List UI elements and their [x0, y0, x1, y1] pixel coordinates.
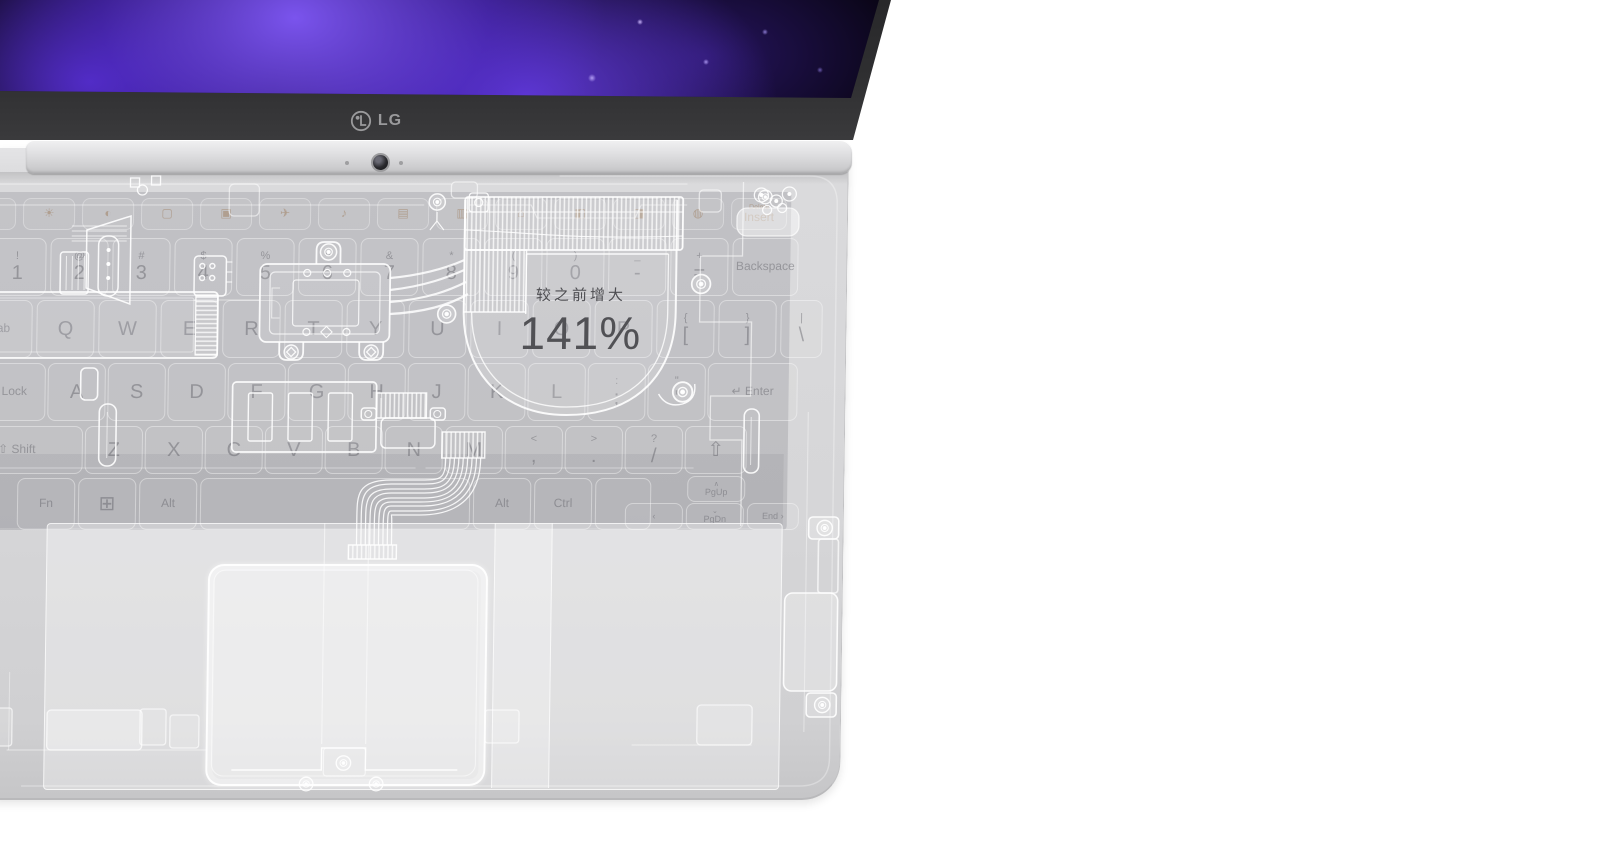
hinge-mount-right [699, 187, 800, 236]
screw-icon [364, 345, 378, 359]
screw-icon [336, 756, 351, 770]
brand-text: LG [378, 113, 402, 129]
screw-icon [817, 520, 833, 535]
heat-pipes [390, 260, 469, 314]
xray-linework [0, 176, 844, 791]
memory-block [232, 382, 377, 452]
speaker-module [783, 517, 839, 717]
screw-icon [438, 305, 456, 323]
cpu-heatsink [193, 242, 391, 360]
fan-callout-label: 较之前增大 [486, 284, 676, 305]
side-pill-right [743, 409, 759, 473]
internals-layer: ◦☀◐▢▣✈♪▤▥⌂◧◨◍DeleteInsert!1@2#3$4%5^6&7*… [0, 172, 848, 798]
mic-hole-icon [399, 161, 403, 165]
screw-icon [673, 382, 693, 402]
screw-icon [299, 777, 313, 791]
screw-icon [758, 190, 772, 204]
internal-components-diagram [0, 172, 850, 800]
webcam-icon [371, 153, 390, 172]
screw-icon [692, 275, 711, 294]
lg-logo: LG [334, 108, 418, 134]
lg-gram-product-hero: ◦☀◐▢▣✈♪▤▥⌂◧◨◍DeleteInsert!1@2#3$4%5^6&7*… [0, 0, 1600, 850]
lg-symbol-icon [350, 110, 372, 132]
screw-icon [369, 777, 383, 791]
laptop-internals-xray: ◦☀◐▢▣✈♪▤▥⌂◧◨◍DeleteInsert!1@2#3$4%5^6&7*… [0, 148, 849, 800]
side-pill-left [99, 404, 117, 466]
mic-hole-icon [345, 161, 349, 165]
fan-size-callout: 较之前增大 141% [485, 284, 676, 356]
battery-details [0, 523, 755, 776]
screw-icon [814, 697, 830, 712]
fan-callout-value: 141% [485, 310, 676, 356]
screw-icon [284, 345, 298, 359]
hinge-mount-left [130, 176, 260, 216]
io-board-left [60, 216, 233, 304]
screw-icon [320, 244, 336, 260]
laptop-display: LG [0, 0, 900, 140]
small-connector [80, 368, 97, 400]
hinge-bar [26, 140, 852, 174]
ssd-module [0, 292, 218, 358]
screen-wallpaper [0, 0, 880, 98]
